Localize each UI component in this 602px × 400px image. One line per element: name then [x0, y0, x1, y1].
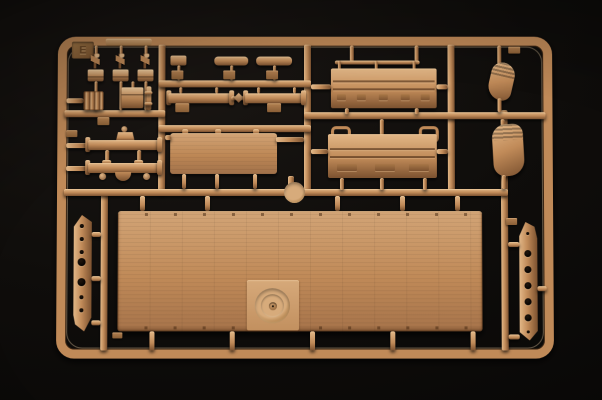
- runner-horizontal: [304, 112, 546, 119]
- sprue-gate: [215, 174, 219, 189]
- board-latch: [409, 164, 429, 171]
- board-latch: [337, 164, 357, 171]
- panel-edge-notches: [118, 326, 481, 329]
- perforated-rail-part: [73, 215, 92, 331]
- sprue-gate: [140, 196, 145, 211]
- sprue-gate: [335, 196, 340, 211]
- cylinder-knob: [144, 102, 152, 105]
- board-groove: [333, 80, 435, 82]
- part-number-tab: [66, 130, 77, 137]
- sprue-letter: E: [79, 44, 86, 56]
- axle-end-cap: [157, 160, 162, 175]
- sprue-gate: [92, 232, 101, 237]
- shift-lever-part: [141, 54, 150, 69]
- shift-lever-part: [116, 54, 125, 69]
- sprue-gate: [508, 242, 519, 247]
- axle-bump: [99, 173, 106, 180]
- small-bracket-part: [170, 56, 186, 66]
- small-box-part: [137, 69, 153, 81]
- sprue-gate: [509, 334, 520, 339]
- runner-horizontal: [158, 125, 311, 132]
- axle-end-cap: [157, 137, 162, 152]
- rail-hole: [527, 330, 530, 333]
- axle-top-knob: [121, 126, 127, 132]
- sprue-gate: [415, 108, 419, 114]
- shift-lever-part: [91, 54, 100, 69]
- part-number-tab: [175, 103, 189, 112]
- rail-hole: [79, 295, 83, 299]
- rail-hole: [80, 250, 84, 254]
- embossed-maker-tab: [106, 39, 152, 46]
- part-number-tab: [171, 70, 183, 79]
- board-groove: [330, 156, 435, 158]
- panel-edge-notches: [119, 213, 481, 216]
- sprue-gate: [471, 331, 476, 350]
- sprue-gate: [423, 178, 427, 190]
- board-latch: [375, 164, 395, 171]
- box-lid-line: [138, 69, 154, 77]
- recess-hub-hole: [272, 305, 274, 307]
- detail-bar-part: [214, 57, 248, 66]
- part-number-tab: [267, 103, 281, 112]
- rail-hole: [526, 232, 529, 235]
- rail-hole-large: [525, 298, 532, 305]
- fender-ribs: [491, 123, 523, 141]
- box-lid-line: [88, 69, 104, 77]
- sprue-gate: [311, 84, 331, 89]
- sprue-gate: [380, 119, 384, 135]
- sprue-gate: [92, 276, 101, 281]
- sprue-gate: [345, 108, 349, 114]
- part-number-tab: [97, 117, 109, 125]
- rail-hole-large: [525, 314, 532, 321]
- sprue-gate: [538, 286, 547, 291]
- cylinder-knob: [144, 91, 152, 94]
- runner-horizontal: [64, 110, 165, 117]
- stowage-box-part: [121, 87, 143, 108]
- board-latch: [421, 94, 430, 100]
- rail-hole-large: [524, 250, 531, 257]
- box-lid-line: [121, 87, 143, 95]
- sprue-gate: [400, 196, 405, 211]
- detail-bar-part: [256, 57, 292, 66]
- part-number-tab: [223, 70, 235, 79]
- photo-of-model-kit-sprue: E: [0, 0, 602, 400]
- axle-rod-part: [245, 93, 303, 103]
- sprue-gate: [380, 178, 384, 190]
- small-cylinder-part: [146, 86, 151, 110]
- sprue-gate: [340, 178, 344, 190]
- cargo-bed-floor-part: [117, 211, 482, 331]
- board-latch: [401, 94, 410, 100]
- sprue-gate: [498, 98, 502, 112]
- rail-hole-large: [77, 278, 85, 286]
- rail-hole: [80, 224, 84, 228]
- sprue-gate: [276, 137, 304, 142]
- box-lid-line: [113, 69, 129, 77]
- board-latch: [379, 94, 388, 100]
- runner-vertical: [447, 45, 455, 194]
- sprue-gate: [437, 84, 448, 89]
- sprue-gate: [91, 320, 100, 325]
- sprue-gate: [350, 46, 354, 62]
- rail-hole-large: [524, 266, 531, 273]
- part-number-tab: [112, 332, 122, 338]
- sprue-gate: [437, 149, 448, 154]
- fender-part: [491, 123, 525, 176]
- axle-rod-part: [168, 93, 231, 103]
- sprue-gate: [182, 174, 186, 189]
- runner-vertical: [304, 45, 311, 194]
- part-number-tab: [506, 218, 517, 225]
- sprue-gate: [310, 331, 315, 350]
- axle-bump: [143, 173, 150, 180]
- roof-panel-part: [170, 133, 277, 174]
- board-latch: [337, 94, 346, 100]
- sprue-gate: [230, 331, 235, 350]
- runner-horizontal: [158, 80, 311, 87]
- sprue-gate: [149, 331, 154, 350]
- axle-assembly-part: [88, 140, 160, 150]
- part-number-tab: [266, 70, 278, 79]
- sprue-gate: [67, 98, 84, 103]
- small-box-part: [113, 69, 129, 81]
- rail-hole: [80, 237, 84, 241]
- grille-plate-part: [83, 91, 103, 110]
- sprue-gate: [415, 46, 419, 62]
- board-groove: [330, 148, 435, 150]
- board-latch: [357, 94, 366, 100]
- sprue-gate: [205, 196, 210, 211]
- sprue-tree: E: [56, 37, 554, 359]
- sprue-gate: [165, 135, 171, 140]
- sprue-gate: [311, 149, 328, 154]
- rail-hole: [79, 308, 83, 312]
- part-number-tab: [508, 47, 520, 54]
- sprue-gate: [390, 331, 395, 350]
- board-groove: [333, 88, 435, 90]
- rod-end-cap: [301, 90, 306, 105]
- sprue-gate: [455, 196, 460, 211]
- runner-vertical: [100, 189, 108, 351]
- round-hatch-cap-part: [284, 182, 305, 203]
- small-box-part: [88, 69, 104, 81]
- rail-hole-large: [78, 258, 86, 266]
- sprue-gate: [253, 174, 257, 189]
- rail-hole-large: [524, 282, 531, 289]
- sprue-gate: [502, 175, 506, 189]
